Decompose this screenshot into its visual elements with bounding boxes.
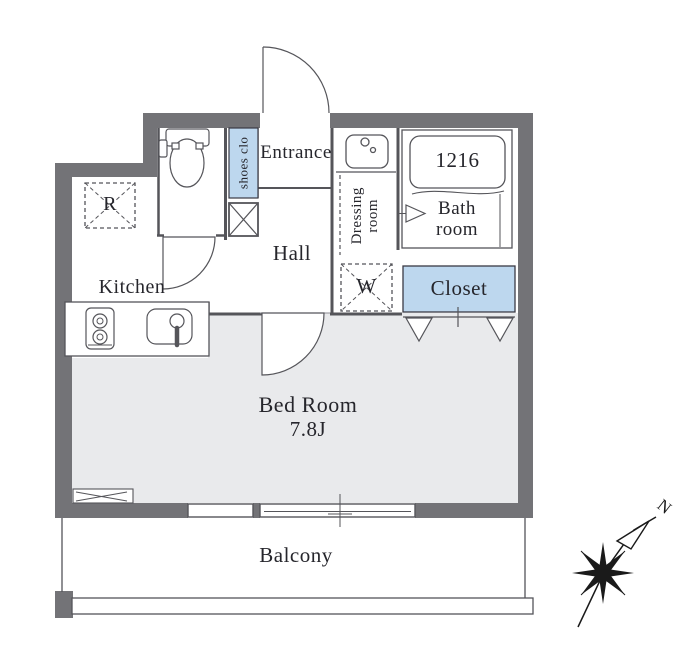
sliding-window-icon: [260, 504, 415, 517]
balcony-label: Balcony: [216, 544, 376, 567]
entrance-label: Entrance: [254, 143, 338, 164]
toilet-hinge-right: [196, 143, 203, 149]
shoes-closet-label: shoes clo: [229, 128, 258, 198]
toilet-icon: [159, 129, 209, 187]
washer-label: W: [341, 275, 392, 298]
bathroom-line2: room: [408, 220, 506, 241]
floorplan-canvas: Entrance shoes clo Hall Dressing room 12…: [0, 0, 694, 658]
wall-right: [518, 113, 533, 518]
dressing-room-text: Dressing room: [350, 187, 382, 244]
kitchen-label: Kitchen: [62, 276, 202, 298]
toilet-hinge-left: [172, 143, 179, 149]
washbasin-faucet: [361, 138, 369, 146]
entrance-door-arc: [263, 47, 329, 113]
dressing-room-label: Dressing room: [334, 172, 398, 260]
shoes-closet-text: shoes clo: [237, 137, 251, 190]
kitchen-counter: [65, 302, 209, 356]
hall-label: Hall: [252, 242, 332, 265]
bedroom-size-label: 7.8J: [208, 418, 408, 441]
bathroom-line1: Bath: [408, 199, 506, 220]
washbasin-icon: [346, 135, 388, 168]
toilet-handle: [159, 140, 167, 157]
closet-label: Closet: [403, 277, 515, 300]
balcony-wall-block: [55, 591, 73, 618]
bedroom-label: Bed Room: [208, 393, 408, 417]
balcony-railing: [72, 598, 533, 614]
north-arrow-icon: [617, 521, 649, 549]
dressing-line2: room: [366, 187, 382, 244]
dressing-line1: Dressing: [350, 187, 366, 244]
bathtub-size-label: 1216: [410, 149, 505, 172]
bathroom-label: Bath room: [408, 199, 506, 241]
wall-bottom-right: [415, 503, 533, 518]
pipe-space-x-box: [229, 203, 258, 236]
compass-rose-icon: [572, 517, 656, 627]
bed-counter-x-box: [73, 489, 133, 503]
wall-bottom-left: [55, 503, 188, 518]
refrigerator-label: R: [85, 193, 135, 215]
wall-top-left: [143, 113, 260, 128]
wall-bottom-mid: [253, 503, 260, 518]
wall-top-right: [330, 113, 533, 128]
window-icon: [188, 504, 253, 517]
washbasin-knob: [371, 148, 376, 153]
